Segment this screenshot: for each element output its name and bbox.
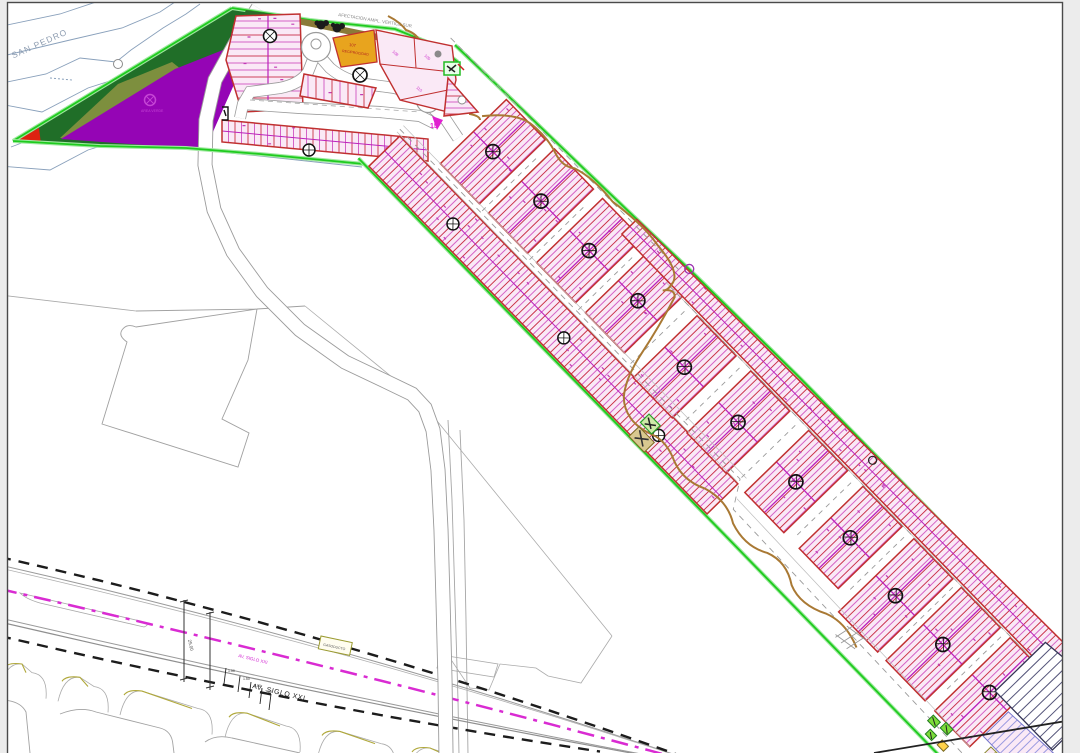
svg-text:AREA VERDE: AREA VERDE bbox=[141, 109, 164, 113]
svg-text:1.50: 1.50 bbox=[228, 669, 235, 673]
svg-text:1.50: 1.50 bbox=[243, 677, 250, 681]
svg-text:15: 15 bbox=[430, 123, 438, 130]
